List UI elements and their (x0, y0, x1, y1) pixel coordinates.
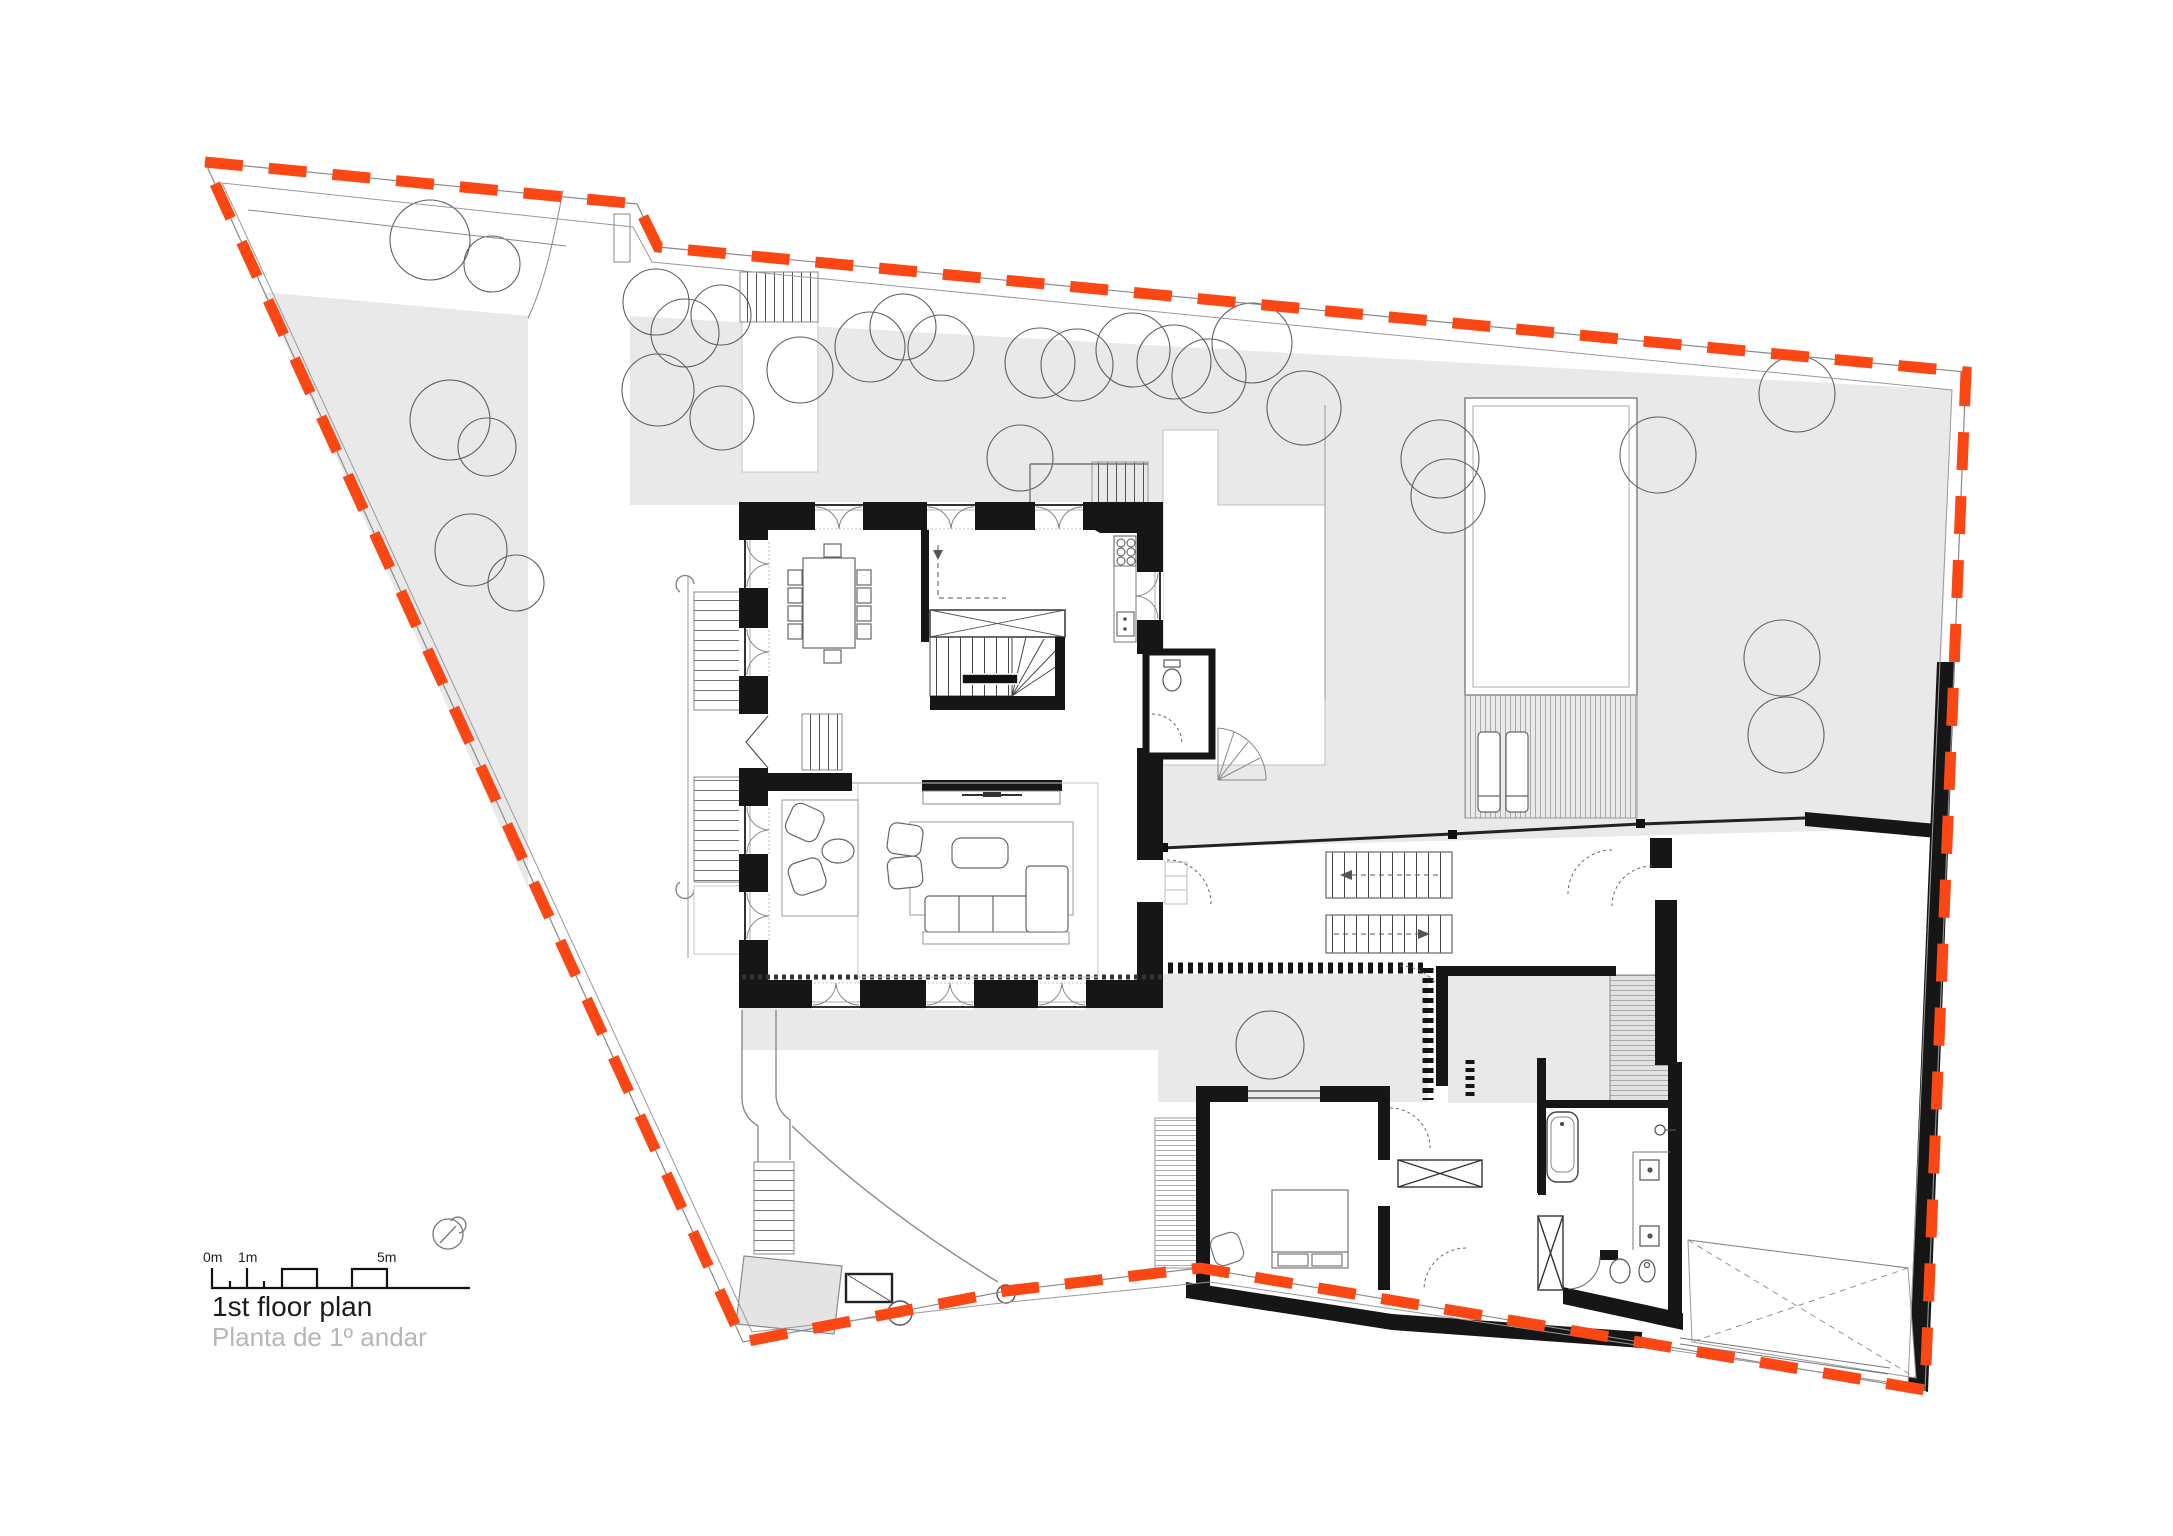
garden-south-strip (742, 1008, 1163, 1050)
dressing-area (1448, 975, 1610, 1103)
door-arc (1612, 866, 1652, 906)
floor-plan-drawing: 0m 1m 5m 1st floor plan Planta de 1º and… (0, 0, 2173, 1536)
bathtub (1547, 1112, 1578, 1182)
window (1135, 572, 1163, 620)
window (1035, 502, 1083, 530)
sun-lounger (1478, 732, 1500, 812)
path-steps (754, 1162, 794, 1254)
bathroom (1547, 1112, 1676, 1289)
toilet-icon (1610, 1259, 1630, 1283)
door-arc (1390, 1108, 1430, 1148)
window (812, 982, 860, 1010)
window (742, 628, 770, 676)
dining-table (803, 558, 855, 648)
door-arc (1424, 1248, 1466, 1290)
window (815, 502, 863, 530)
sofa-chaise (1026, 866, 1068, 932)
window (926, 982, 974, 1010)
door-arc (1167, 860, 1211, 904)
kitchen-sink (1117, 612, 1134, 636)
garden-stair-path (742, 322, 818, 472)
exterior-mid-stairs (1326, 852, 1452, 953)
gate-door-arc (1568, 850, 1612, 894)
floor-plan-sheet: 0m 1m 5m 1st floor plan Planta de 1º and… (0, 0, 2173, 1536)
sun-lounger (1506, 732, 1528, 812)
street-stair (740, 272, 818, 322)
plan-title: 1st floor plan (212, 1291, 372, 1322)
plan-subtitle: Planta de 1º andar (212, 1322, 427, 1352)
bedroom (1208, 1190, 1348, 1268)
window (927, 502, 975, 530)
kitchen (1114, 536, 1136, 642)
north-indicator (433, 1217, 466, 1249)
scale-label-5m: 5m (377, 1249, 396, 1265)
swimming-pool (1465, 398, 1637, 695)
window (1038, 982, 1086, 1010)
tv-console (923, 791, 1060, 804)
toilet-icon (1163, 660, 1181, 691)
bidet-icon (1639, 1260, 1655, 1282)
sink-icon (1640, 1160, 1659, 1246)
armchair (1208, 1230, 1246, 1268)
scale-bar (212, 1268, 470, 1288)
title-block: 0m 1m 5m 1st floor plan Planta de 1º and… (203, 1217, 470, 1352)
scale-label-1m: 1m (238, 1249, 257, 1265)
east-door-threshold (1165, 862, 1187, 904)
scale-label-0m: 0m (203, 1249, 222, 1265)
terrace-patio (1158, 974, 1428, 1102)
main-house (739, 502, 1211, 1010)
tree-icon (390, 200, 470, 280)
shed-step (846, 1274, 892, 1302)
window (742, 806, 770, 854)
coffee-table (952, 838, 1008, 868)
window (742, 540, 770, 588)
hall-steps (802, 714, 842, 770)
door-arc (1568, 1257, 1600, 1289)
tree-icon (464, 236, 520, 292)
west-exterior-stair (676, 575, 742, 958)
bedroom-deck (1155, 1118, 1201, 1268)
window (742, 892, 770, 940)
stair-handrail (962, 674, 1018, 684)
